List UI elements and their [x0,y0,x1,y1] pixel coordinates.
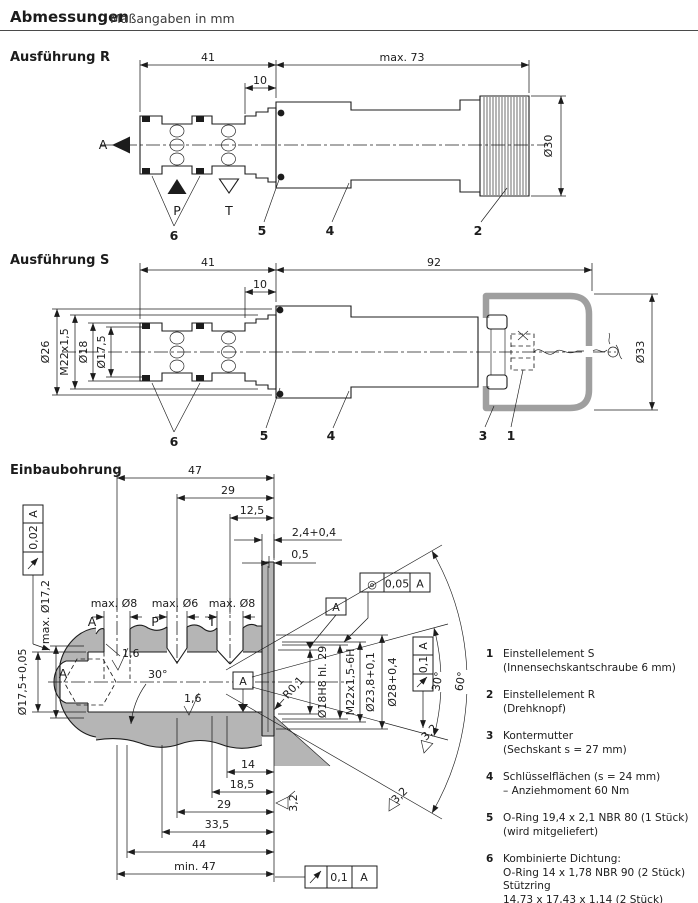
legend-line: Stützring [503,880,685,894]
legend-item-number: 3 [486,730,497,757]
s-dimensions: Ø26 M22x1,5 Ø18 Ø17,5 41 10 92 Ø33 [39,256,658,410]
r-port-t-label: T [224,203,233,218]
port-a-arrow-icon [112,137,130,154]
bore-dim-14: 14 [241,758,255,771]
fcf-bottom-datum: A [360,871,368,884]
legend-item-4: 4 Schlüsselflächen (s = 24 mm)– Anziehmo… [486,771,696,798]
legend-item-6: 6 Kombinierte Dichtung: O-Ring 14 x 1,78… [486,853,696,903]
s-callout-4: 4 [327,428,336,443]
legend: 1 Einstellelement S(Innensechskantschrau… [486,648,696,903]
rough-32-b: 3,2 [389,785,411,807]
bore-dim-m22: M22x1,5-6H [344,649,357,716]
bore-port-p-label: P [151,614,159,629]
fcf-bottom-tol: 0,1 [330,871,348,884]
fcf-bottom-frame: 0,1 A [275,866,377,888]
legend-line: (Drehknopf) [503,703,595,717]
knurl-lines [484,97,526,195]
bore-dim-d28: Ø28+0,4 [386,657,399,706]
legend-line: Kontermutter [503,730,627,744]
r-dim-41-label: 41 [201,51,215,64]
bore-dim-max-d172: max. Ø17,2 [39,580,52,644]
rough-16-b: 1,6 [184,692,202,705]
r-port-p-label: P [173,203,181,218]
bore-dim-min47: min. 47 [174,860,216,873]
s-callout-6: 6 [170,434,179,449]
s-callouts: 6 5 4 3 1 [152,370,523,449]
r-callouts: 6 5 4 2 [152,176,507,243]
legend-item-number: 1 [486,648,497,675]
r-callout-4: 4 [326,223,335,238]
port-p-arrow-icon [168,179,187,194]
page-subtitle: Maßangaben in mm [110,11,235,26]
legend-item-number: 6 [486,853,497,903]
bore-dim-max-d8-a: max. Ø8 [91,597,138,610]
s-dim-92-label: 92 [427,256,441,269]
bore-axis-label: A [59,666,68,681]
r-dim-d30-label: Ø30 [542,135,555,158]
legend-line: O-Ring 14 x 1,78 NBR 90 (2 Stück) [503,867,685,881]
bore-dim-47: 47 [188,464,202,477]
rough-32-c: 3,2 [419,722,441,744]
legend-line: (Innensechskantschraube 6 mm) [503,662,676,676]
s-dim-10-label: 10 [253,278,267,291]
fcf-right-tol: 0,1 [417,656,430,674]
r-ports: A P T [99,137,239,219]
legend-line: O-Ring 19,4 x 2,1 NBR 80 (1 Stück) [503,812,688,826]
bore-angle-60: 60° [452,671,468,692]
r-dim-max73-label: max. 73 [380,51,425,64]
port-t-arrow-icon [220,179,239,193]
header-rule [0,30,698,31]
bore-dim-29-top: 29 [221,484,235,497]
bore-dim-44: 44 [192,838,206,851]
r-callout-6: 6 [170,228,179,243]
concentricity-icon: ◎ [367,578,377,591]
bore-angle-30: 30° [429,671,445,692]
bore-port-t-label: T [207,614,216,629]
bore-left-dims: Ø17,5+0,05 max. Ø17,2 A 0,02 [16,505,86,718]
legend-item-1: 1 Einstellelement S(Innensechskantschrau… [486,648,696,675]
lead-seal-wire [534,333,622,359]
bore-dim-d238: Ø23,8+0,1 [364,652,377,712]
figure-s-drawing: Ø26 M22x1,5 Ø18 Ø17,5 41 10 92 Ø33 6 5 4… [0,252,698,455]
legend-item-5: 5 O-Ring 19,4 x 2,1 NBR 80 (1 Stück)(wir… [486,812,696,839]
o-ring-dot-top [277,307,284,314]
fcf-concentric-datum: A [416,578,424,591]
s-callout-3: 3 [479,428,488,443]
fcf-left-datum: A [27,510,40,518]
bore-port-a-label: A [88,614,97,629]
bore-angle-chamfer: 30° [148,668,168,681]
s-dim-m22-label: M22x1,5 [58,328,71,376]
bore-dim-185: 18,5 [230,778,255,791]
bore-dim-d175: Ø17,5+0,05 [16,649,29,716]
legend-line: (Sechskant s = 27 mm) [503,744,627,758]
fcf-concentricity-frame: ◎ 0,05 A [344,573,430,642]
s-callout-1: 1 [507,428,516,443]
fcf-right-datum: A [417,642,430,650]
bore-dim-max-d8-t: max. Ø8 [209,597,256,610]
legend-line: Einstellelement R [503,689,595,703]
bore-dim-max-d6: max. Ø6 [152,597,199,610]
bore-dim-r01: R0,1 [280,674,306,701]
datum-flag-a1: A [239,675,247,688]
bore-top-dims: 47 29 12,5 2,4+0,4 0,5 [117,464,342,614]
r-body-and-knob [276,96,529,196]
o-ring-dot-top [278,110,285,117]
o-ring-dot-bottom [278,174,285,181]
legend-line: Einstellelement S [503,648,676,662]
bore-section-fill [54,562,330,766]
s-dim-41-label: 41 [201,256,215,269]
legend-item-number: 4 [486,771,497,798]
legend-line: 14,73 x 17,43 x 1,14 (2 Stück) [503,894,685,903]
legend-line: – Anziehmoment 60 Nm [503,785,660,799]
technical-drawing-page: Abmessungen Maßangaben in mm Ausführung … [0,0,698,903]
legend-item-number: 2 [486,689,497,716]
r-callout-2: 2 [474,223,483,238]
legend-line: (wird mitgeliefert) [503,826,688,840]
legend-item-2: 2 Einstellelement R(Drehknopf) [486,689,696,716]
bore-dim-335: 33,5 [205,818,230,831]
bore-dim-24: 2,4+0,4 [292,526,336,539]
bore-dim-125: 12,5 [240,504,265,517]
s-dim-d175-label: Ø17,5 [95,335,108,368]
s-callout-5: 5 [260,428,269,443]
s-dim-d33-label: Ø33 [634,341,647,364]
bore-dim-05: 0,5 [291,548,309,561]
fcf-left-tol: 0,02 [27,525,40,550]
fcf-concentric-tol: 0,05 [385,578,410,591]
r-port-a-label: A [99,137,108,152]
r-dim-10-label: 10 [253,74,267,87]
legend-item-3: 3 Kontermutter(Sechskant s = 27 mm) [486,730,696,757]
bore-dim-29-bot: 29 [217,798,231,811]
s-dim-d18-label: Ø18 [77,341,90,364]
figure-r-drawing: 41 max. 73 10 Ø30 A P T 6 5 4 2 [0,40,698,252]
legend-line: Kombinierte Dichtung: [503,853,685,867]
rough-16-a: 1,6 [122,647,140,660]
legend-line: Schlüsselflächen (s = 24 mm) [503,771,660,785]
s-dim-d26-label: Ø26 [39,341,52,364]
rough-32-a: 3,2 [287,794,300,812]
adjustment-screw-hidden [511,331,534,370]
r-callout-5: 5 [258,223,267,238]
legend-item-number: 5 [486,812,497,839]
